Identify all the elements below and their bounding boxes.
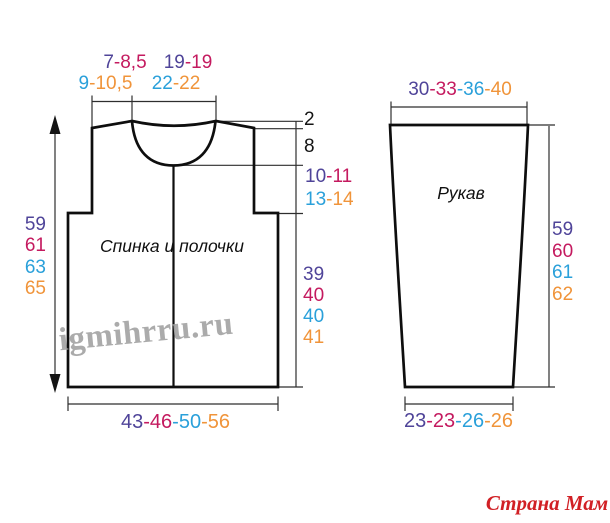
dim-neck-width-row2: 22-22	[146, 73, 206, 95]
back-piece-label: Спинка и полочки	[92, 236, 252, 257]
dim-sleeve-top-width: 30-33-36-40	[408, 79, 512, 101]
dim-neck-width-row1: 19-19	[158, 52, 218, 74]
site-logo: Страна Мам	[485, 491, 609, 516]
dim-neck-depth: 8	[304, 136, 315, 158]
dim-hem-width: 43-46-50-56	[121, 411, 225, 433]
dim-yoke-row1: 10-11	[305, 166, 352, 188]
dim-shoulder-width-row2: 9-10,5	[76, 73, 135, 95]
dim-total-length-stack: 59616365	[14, 214, 46, 300]
dim-sleeve-length-stack: 59606162	[552, 219, 586, 305]
sleeve-piece-label: Рукав	[421, 183, 501, 204]
dim-side-length-stack: 39404041	[303, 264, 343, 348]
dim-cuff-width: 23-23-26-26	[404, 410, 508, 432]
pattern-schematic-page: 7-8,5 19-19 9-10,5 22-22 2 8 10-11 13-14…	[0, 0, 610, 523]
dim-shoulder-width-row1: 7-8,5	[93, 52, 157, 74]
dim-yoke-row2: 13-14	[305, 189, 354, 211]
front-neckline-curve	[132, 121, 216, 166]
dim-shoulder-drop: 2	[304, 109, 315, 131]
sleeve-outline	[390, 125, 528, 387]
